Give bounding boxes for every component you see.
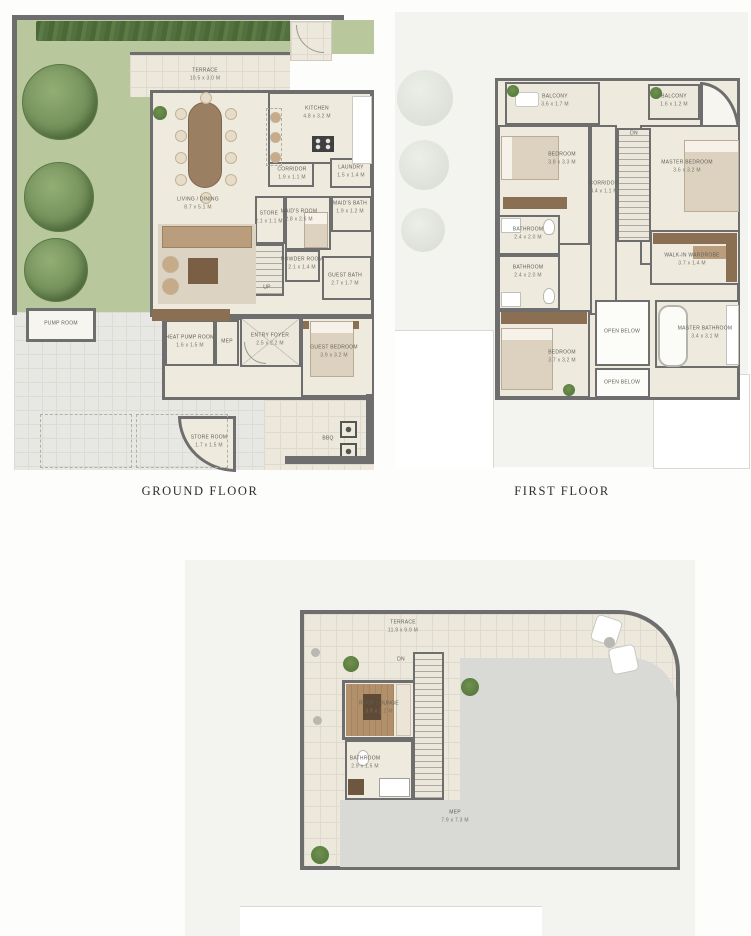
dresser: [503, 197, 567, 209]
room-dims: 3.9 x 3.2 M: [359, 708, 399, 716]
room-name: ROOF LOUNGE: [359, 701, 399, 709]
room-name: PUMP ROOM: [44, 320, 78, 328]
room-dims: 1.7 x 1.5 M: [191, 442, 228, 450]
room-label-walk-in: WALK-IN WARDROBE 3.7 x 1.4 M: [664, 253, 719, 268]
boundary-wall-left: [12, 15, 17, 315]
void-label: OPEN BELOW: [604, 328, 640, 336]
tree-icon: [24, 238, 88, 302]
room-name: ENTRY FOYER: [251, 333, 289, 341]
room-dims: 3.9 x 3.2 M: [310, 352, 358, 360]
room-label-roof-bathroom: BATHROOM 2.9 x 1.5 M: [350, 756, 381, 771]
wall-bottom: [285, 456, 374, 464]
room-label-store-room: STORE ROOM 1.7 x 1.5 M: [191, 435, 228, 450]
roof-cutout: [240, 906, 542, 936]
room-label-store: STORE 2.1 x 1.1 M: [255, 211, 282, 226]
room-dims: 3.7 x 1.4 M: [664, 260, 719, 268]
plant-icon: [153, 106, 167, 120]
dining-table: [188, 102, 222, 188]
room-name: BEDROOM: [548, 152, 576, 160]
room-name: CORRIDOR: [589, 181, 618, 189]
room-label-roof-terrace: TERRACE 11.9 x 9.9 M: [388, 620, 418, 635]
garden-corner: [332, 20, 374, 54]
room-label-balcony-right: BALCONY 1.6 x 1.2 M: [660, 94, 687, 109]
room-dims: 3.8 x 3.3 M: [548, 159, 576, 167]
ground-floor-plan: TERRACE 10.5 x 3.0 M LIVING / DINING 8.7…: [12, 12, 374, 472]
label-open-below: OPEN BELOW: [604, 328, 640, 336]
coffee-table: [188, 258, 218, 284]
plant-icon: [343, 656, 359, 672]
room-name: CORRIDOR: [277, 167, 306, 175]
room-dims: 4.4 x 1.1 M: [589, 188, 618, 196]
room-dims: 1.6 x 1.2 M: [660, 101, 687, 109]
room-dims: 1.6 x 1.5 M: [165, 342, 214, 350]
lounge-chair-icon: [515, 92, 539, 107]
room-name: LIVING / DINING: [177, 197, 219, 205]
nightstand: [303, 321, 309, 329]
label-bbq: BBQ: [322, 435, 333, 443]
room-label-guest-bath: GUEST BATH 2.7 x 1.7 M: [328, 273, 362, 288]
room-label-guest-bedroom: GUEST BEDROOM 3.9 x 3.2 M: [310, 345, 358, 360]
spotlight-icon: [311, 648, 320, 657]
room-name: GUEST BEDROOM: [310, 345, 358, 353]
boundary-wall-top: [12, 15, 344, 20]
bed-icon: [684, 140, 739, 212]
wall-right: [366, 394, 374, 464]
room-name: BALCONY: [541, 94, 568, 102]
room-dims: 7.9 x 7.3 M: [441, 817, 468, 825]
room-dims: 1.9 x 1.2 M: [333, 208, 367, 216]
room-name: WALK-IN WARDROBE: [664, 253, 719, 261]
first-floor-plan: BALCONY 3.6 x 1.7 M BALCONY 1.6 x 1.2 M …: [395, 12, 748, 467]
roof-mep-area: [460, 658, 677, 867]
stairs-label-dn: DN: [630, 130, 638, 138]
room-name: GUEST BATH: [328, 273, 362, 281]
nightstand: [353, 321, 359, 329]
plant-icon: [563, 384, 575, 396]
tree-icon: [22, 64, 98, 140]
room-name: BBQ: [322, 435, 333, 443]
room-name: POWDER ROOM: [281, 257, 323, 265]
room-name: STORE: [255, 211, 282, 219]
chair-icon: [175, 152, 187, 164]
stairs-direction: UP: [263, 284, 270, 292]
room-name: LAUNDRY: [337, 165, 364, 173]
room-dims: 11.9 x 9.9 M: [388, 627, 418, 635]
room-dims: 3.4 x 3.1 M: [678, 333, 733, 341]
ground-floor-title: GROUND FLOOR: [130, 484, 270, 499]
toilet-icon: [543, 219, 555, 235]
room-dims: 3.6 x 3.2 M: [661, 167, 713, 175]
room-name: BATHROOM: [350, 756, 381, 764]
plant-icon: [507, 85, 519, 97]
room-dims: 4.8 x 3.2 M: [303, 113, 330, 121]
room-dims: 2.4 x 2.0 M: [513, 234, 544, 242]
room-name: BATHROOM: [513, 227, 544, 235]
toilet-icon: [543, 288, 555, 304]
room-name: TERRACE: [190, 68, 221, 76]
chair-icon: [175, 108, 187, 120]
chair-icon: [200, 92, 212, 104]
room-corridor: [590, 125, 617, 315]
room-label-kitchen: KITCHEN 4.8 x 3.2 M: [303, 106, 330, 121]
chair-icon: [225, 130, 237, 142]
room-name: BEDROOM: [548, 350, 576, 358]
floorplan-sheet: TERRACE 10.5 x 3.0 M LIVING / DINING 8.7…: [0, 0, 751, 936]
wardrobe-shelving: [501, 312, 587, 324]
tree-shadow-icon: [401, 208, 445, 252]
room-name: MAID'S ROOM: [281, 209, 317, 217]
wardrobe-shelving: [726, 244, 737, 282]
chair-icon: [225, 108, 237, 120]
room-label-entry-foyer: ENTRY FOYER 2.5 x 2.2 M: [251, 333, 289, 348]
room-label-roof-mep: MEP 7.9 x 7.3 M: [441, 810, 468, 825]
chair-icon: [175, 174, 187, 186]
wardrobe-shelving: [653, 233, 737, 244]
label-open-below: OPEN BELOW: [604, 379, 640, 387]
stairs-direction: DN: [630, 130, 638, 138]
room-label-pump-room: PUMP ROOM: [44, 320, 78, 328]
room-label-living: LIVING / DINING 8.7 x 5.1 M: [177, 197, 219, 212]
sofa-icon: [162, 226, 252, 248]
room-dims: 2.4 x 2.0 M: [513, 272, 544, 280]
stairs-down: [413, 652, 444, 800]
room-dims: 10.5 x 3.0 M: [190, 75, 221, 83]
spotlight-icon: [313, 716, 322, 725]
room-name: STORE ROOM: [191, 435, 228, 443]
room-name: MASTER BEDROOM: [661, 160, 713, 168]
room-dims: 8.7 x 5.1 M: [177, 204, 219, 212]
roof-plan: TERRACE 11.9 x 9.9 M ROOF LOUNGE 3.9 x 3…: [185, 560, 695, 936]
room-name: KITCHEN: [303, 106, 330, 114]
room-label-powder: POWDER ROOM 2.1 x 1.4 M: [281, 257, 323, 272]
room-name: BALCONY: [660, 94, 687, 102]
side-table: [604, 637, 615, 648]
room-name: MASTER BATHROOM: [678, 326, 733, 334]
room-label-maids-bath: MAID'S BATH 1.9 x 1.2 M: [333, 201, 367, 216]
room-dims: 2.9 x 1.5 M: [350, 763, 381, 771]
room-name: TERRACE: [388, 620, 418, 628]
room-dims: 3.7 x 3.2 M: [548, 357, 576, 365]
tree-shadow-icon: [397, 70, 453, 126]
vanity: [501, 292, 521, 307]
room-name: MEP: [221, 338, 233, 346]
room-name: BATHROOM: [513, 265, 544, 273]
room-name: HEAT PUMP ROOM: [165, 335, 214, 343]
stove-hob-icon: [312, 136, 334, 152]
stool-icon: [270, 132, 281, 143]
room-label-terrace: TERRACE 10.5 x 3.0 M: [190, 68, 221, 83]
stool-icon: [270, 112, 281, 123]
room-label-corridor: CORRIDOR 1.9 x 1.1 M: [277, 167, 306, 182]
kitchen-counter: [352, 96, 372, 164]
room-label-bathroom-2: BATHROOM 2.4 x 2.0 M: [513, 227, 544, 242]
room-dims: 1.9 x 1.1 M: [277, 174, 306, 182]
console-table: [152, 309, 230, 321]
room-label-roof-lounge: ROOF LOUNGE 3.9 x 3.2 M: [359, 701, 399, 716]
stairs-label-dn: DN: [397, 656, 405, 664]
chair-icon: [225, 174, 237, 186]
void-label: OPEN BELOW: [604, 379, 640, 387]
room-label-bathroom-3: BATHROOM 2.4 x 2.0 M: [513, 265, 544, 280]
chair-icon: [175, 130, 187, 142]
tree-shadow-icon: [399, 140, 449, 190]
first-floor-title: FIRST FLOOR: [492, 484, 632, 499]
room-dims: 3.6 x 1.7 M: [541, 101, 568, 109]
room-dims: 2.7 x 1.7 M: [328, 280, 362, 288]
tree-icon: [24, 162, 94, 232]
parking-outline: [40, 414, 132, 468]
room-label-laundry: LAUNDRY 1.5 x 1.4 M: [337, 165, 364, 180]
room-name: MAID'S BATH: [333, 201, 367, 209]
room-dims: 2.1 x 1.4 M: [281, 264, 323, 272]
shower: [379, 778, 410, 797]
hedge-icon: [36, 21, 292, 41]
bbq-grill-icon: [340, 421, 357, 438]
room-label-master-bedroom: MASTER BEDROOM 3.6 x 3.2 M: [661, 160, 713, 175]
roof-cutout: [395, 330, 494, 468]
room-label-bedroom-3: BEDROOM 3.7 x 3.2 M: [548, 350, 576, 365]
stairs-label-up: UP: [263, 284, 270, 292]
vanity: [348, 779, 364, 795]
plant-icon: [311, 846, 329, 864]
room-dims: 1.5 x 1.4 M: [337, 172, 364, 180]
room-label-master-bathroom: MASTER BATHROOM 3.4 x 3.1 M: [678, 326, 733, 341]
chair-icon: [225, 152, 237, 164]
armchair-icon: [162, 256, 179, 273]
bed-icon: [501, 328, 553, 390]
room-label-maids-room: MAID'S ROOM 2.8 x 2.6 M: [281, 209, 317, 224]
room-label-mep: MEP: [221, 338, 233, 346]
room-label-bedroom-2: BEDROOM 3.8 x 3.3 M: [548, 152, 576, 167]
stairs-down: [617, 128, 651, 242]
room-label-balcony-left: BALCONY 3.6 x 1.7 M: [541, 94, 568, 109]
plant-icon: [461, 678, 479, 696]
room-name: MEP: [441, 810, 468, 818]
armchair-icon: [162, 278, 179, 295]
room-dims: 2.1 x 1.1 M: [255, 218, 282, 226]
room-dims: 2.5 x 2.2 M: [251, 340, 289, 348]
lounge-chair-icon: [607, 643, 639, 675]
stairs-direction: DN: [397, 656, 405, 664]
room-label-heat-pump: HEAT PUMP ROOM 1.6 x 1.5 M: [165, 335, 214, 350]
room-dims: 2.8 x 2.6 M: [281, 216, 317, 224]
room-label-corridor: CORRIDOR 4.4 x 1.1 M: [589, 181, 618, 196]
stool-icon: [270, 152, 281, 163]
